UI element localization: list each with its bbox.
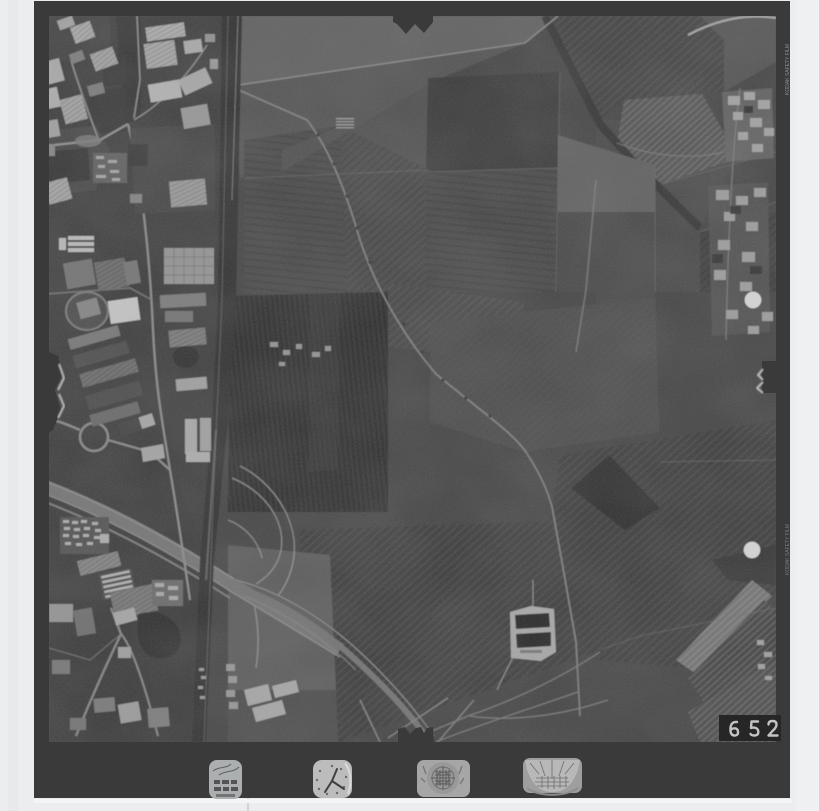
svg-text:KODAK SAFETY FILM: KODAK SAFETY FILM [785, 44, 791, 95]
svg-text:KODAK SAFETY FILM: KODAK SAFETY FILM [785, 524, 791, 575]
